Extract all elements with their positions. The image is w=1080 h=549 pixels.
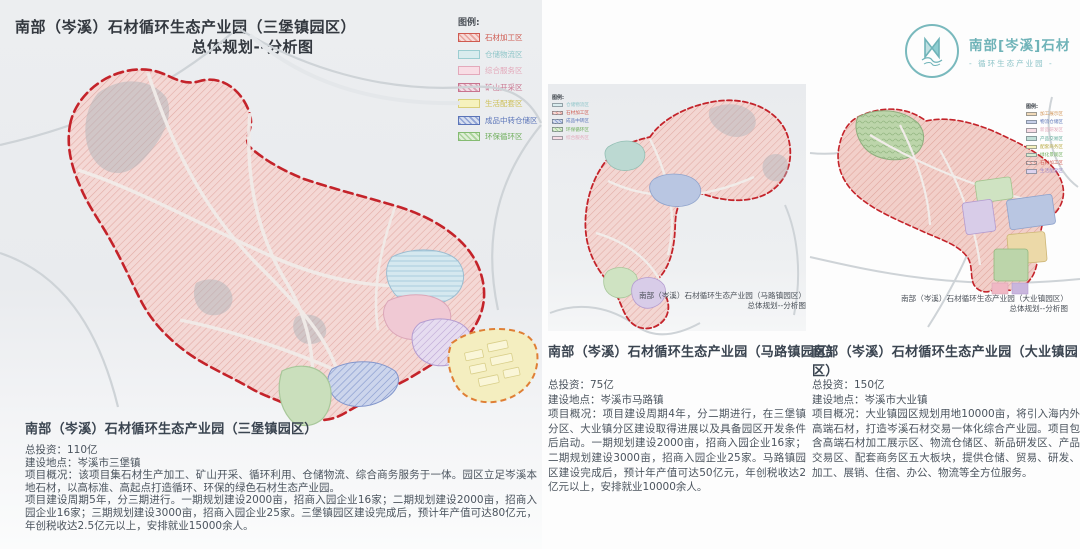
investment-line: 总投资：110亿 bbox=[25, 444, 537, 457]
investment-line: 总投资：75亿 bbox=[548, 378, 806, 393]
pink-swatch-icon bbox=[1026, 128, 1037, 133]
legend-item: 加工展示区 bbox=[1026, 111, 1063, 117]
red-hatch-swatch-icon bbox=[1026, 161, 1037, 166]
logo-mark-icon bbox=[905, 24, 959, 78]
daye-caption-line2: 总体规划--分析图 bbox=[862, 304, 1068, 314]
overview-paragraph: 项目概况：该项目集石材生产加工、矿山开采、循环利用、仓储物流、综合商务服务于一体… bbox=[25, 469, 537, 494]
legend-item: 石材加工区 bbox=[1026, 160, 1063, 166]
location-line: 建设地点：岑溪市马路镇 bbox=[548, 393, 806, 408]
overview-paragraph: 项目概况：大业镇园区规划用地10000亩，将引入海内外高端石材，打造岑溪石材交易… bbox=[812, 407, 1080, 480]
teal-swatch-icon bbox=[1026, 136, 1037, 141]
blue-hatch-swatch-icon bbox=[552, 119, 563, 124]
logo-text: 南部[岑溪]石材 - 循环生态产业园 - bbox=[969, 34, 1070, 69]
legend-item: 新品研发区 bbox=[1026, 127, 1063, 133]
eco-green-region bbox=[279, 366, 331, 425]
legend-item: 生活配套区 bbox=[1026, 168, 1063, 174]
legend-item: 成品中转区 bbox=[552, 118, 589, 124]
daye-legend-heading: 图例: bbox=[1026, 103, 1063, 110]
daye-info-text: 总投资：150亿 建设地点：岑溪市大业镇 项目概况：大业镇园区规划用地10000… bbox=[812, 378, 1080, 480]
malu-caption-line2: 总体规划--分析图 bbox=[600, 301, 806, 311]
daye-map-caption: 南部（岑溪）石材循环生态产业园（大业镇园区） 总体规划--分析图 bbox=[862, 294, 1068, 313]
poster-stage: 南部（岑溪）石材循环生态产业园（三堡镇园区） 总体规划--分析图 图例: 石材加… bbox=[0, 0, 1080, 549]
green-swatch-icon bbox=[1026, 153, 1037, 158]
warehouse-region bbox=[605, 141, 645, 171]
logo-sub-line: - 循环生态产业园 - bbox=[969, 58, 1070, 69]
legend-item: 综合服务区 bbox=[552, 135, 589, 141]
green-hatch-swatch-icon bbox=[552, 127, 563, 132]
daye-legend: 图例: 加工展示区 物流仓储区 新品研发区 产品交易区 配套商务区 绿化景观区 … bbox=[1026, 103, 1063, 177]
legend-item: 配套商务区 bbox=[1026, 144, 1063, 150]
malu-section-title: 南部（岑溪）石材循环生态产业园（马路镇园区） bbox=[548, 341, 841, 360]
malu-legend-heading: 图例: bbox=[552, 94, 589, 101]
lavender-swatch-icon bbox=[1026, 169, 1037, 174]
sanbu-map bbox=[0, 25, 542, 425]
blue-swatch-icon bbox=[1026, 120, 1037, 125]
finished-stone-transfer-region bbox=[328, 362, 399, 407]
sanbu-info-text: 总投资：110亿 建设地点：岑溪市三堡镇 项目概况：该项目集石材生产加工、矿山开… bbox=[25, 444, 537, 532]
legend-item: 环保循环区 bbox=[552, 127, 589, 133]
yellow-swatch-icon bbox=[1026, 145, 1037, 150]
cyan-swatch-icon bbox=[552, 103, 563, 108]
pink-swatch-icon bbox=[552, 136, 563, 141]
phases-paragraph: 项目建设周期5年，分三期进行。一期规划建设2000亩，招商入园企业16家；二期规… bbox=[25, 494, 537, 532]
investment-line: 总投资：150亿 bbox=[812, 378, 1080, 393]
logo-name-line: 南部[岑溪]石材 bbox=[969, 34, 1070, 54]
malu-caption-line1: 南部（岑溪）石材循环生态产业园（马路镇园区） bbox=[600, 291, 806, 301]
red-hatch-swatch-icon bbox=[552, 111, 563, 116]
malu-info-text: 总投资：75亿 建设地点：岑溪市马路镇 项目概况：项目建设周期4年，分二期进行，… bbox=[548, 378, 806, 495]
overview-paragraph: 项目概况：项目建设周期4年，分二期进行，在三堡镇分区、大业镇分区建设取得进展以及… bbox=[548, 407, 806, 495]
sanbu-section-title: 南部（岑溪）石材循环生态产业园（三堡镇园区） bbox=[25, 418, 318, 437]
location-line: 建设地点：岑溪市大业镇 bbox=[812, 393, 1080, 408]
location-line: 建设地点：岑溪市三堡镇 bbox=[25, 457, 537, 470]
sanbu-panel: 南部（岑溪）石材循环生态产业园（三堡镇园区） 总体规划--分析图 图例: 石材加… bbox=[0, 0, 542, 549]
park-logo: 南部[岑溪]石材 - 循环生态产业园 - bbox=[905, 20, 1080, 82]
legend-item: 产品交易区 bbox=[1026, 136, 1063, 142]
living-support-region bbox=[449, 329, 538, 402]
legend-item: 物流仓储区 bbox=[1026, 119, 1063, 125]
malu-legend: 图例: 仓储物流区 石材加工区 成品中转区 环保循环区 综合服务区 bbox=[552, 94, 589, 143]
legend-item: 石材加工区 bbox=[552, 110, 589, 116]
daye-section-title: 南部（岑溪）石材循环生态产业园（大业镇园区） bbox=[812, 341, 1080, 379]
legend-item: 绿化景观区 bbox=[1026, 152, 1063, 158]
daye-caption-line1: 南部（岑溪）石材循环生态产业园（大业镇园区） bbox=[862, 294, 1068, 304]
legend-item: 仓储物流区 bbox=[552, 102, 589, 108]
malu-map-caption: 南部（岑溪）石材循环生态产业园（马路镇园区） 总体规划--分析图 bbox=[600, 291, 806, 310]
tan-swatch-icon bbox=[1026, 112, 1037, 117]
